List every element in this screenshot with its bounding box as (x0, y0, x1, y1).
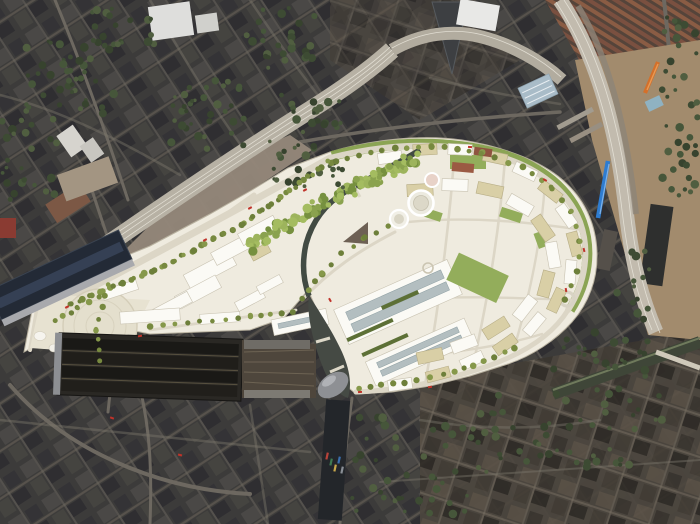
tree (160, 322, 166, 328)
tree (288, 217, 298, 227)
tree (212, 77, 219, 84)
tree (172, 118, 177, 123)
tree (325, 159, 330, 164)
tree (268, 312, 273, 317)
tree (3, 179, 11, 187)
tree (70, 90, 74, 94)
tree (577, 239, 582, 244)
tree (536, 442, 541, 447)
tree (567, 449, 573, 455)
tree (287, 187, 293, 193)
tree (582, 353, 586, 357)
tree (272, 225, 278, 231)
tree (315, 166, 321, 172)
tree (396, 496, 401, 501)
tree (23, 44, 31, 52)
tree (468, 434, 475, 441)
tree (637, 349, 642, 354)
tree (349, 183, 355, 189)
tree (510, 425, 515, 430)
tree (662, 29, 668, 35)
tree (241, 116, 247, 122)
tree (94, 327, 99, 332)
tree (687, 134, 694, 141)
tree (320, 121, 328, 129)
tree (374, 230, 379, 235)
tree (190, 99, 194, 103)
tree (89, 293, 95, 299)
tree (409, 159, 417, 167)
tree (610, 338, 618, 346)
tree (540, 423, 548, 431)
tree (566, 423, 574, 431)
tree (635, 297, 640, 302)
tree (376, 167, 381, 172)
tree (206, 118, 212, 124)
tree (76, 306, 80, 310)
tree (64, 68, 70, 74)
tree (202, 134, 207, 139)
tree (263, 237, 271, 245)
tree (591, 351, 598, 358)
tree (50, 116, 57, 123)
tree (470, 363, 477, 370)
tree (477, 410, 485, 418)
tree (354, 509, 358, 513)
tree (187, 85, 192, 90)
tree (96, 337, 101, 342)
tree (102, 43, 108, 49)
tree (315, 118, 321, 124)
tree (612, 364, 619, 371)
tree (229, 118, 237, 126)
tree (141, 270, 148, 277)
tree (311, 210, 319, 218)
tree (260, 207, 265, 212)
tree (221, 83, 226, 88)
tree (459, 425, 466, 432)
tree (520, 164, 527, 171)
tree (276, 151, 282, 157)
tree (79, 296, 86, 303)
tree (191, 247, 198, 254)
tree (545, 450, 553, 458)
tree (311, 13, 317, 19)
tree (281, 57, 288, 64)
tree (113, 22, 119, 28)
tree (32, 183, 37, 188)
tree (426, 510, 433, 517)
tree (664, 148, 672, 156)
tree (305, 173, 310, 178)
tree (253, 235, 259, 241)
tree (516, 448, 523, 455)
tree (449, 510, 458, 519)
tree (462, 365, 467, 370)
tree (303, 204, 313, 214)
tree (491, 426, 499, 434)
tree (312, 111, 316, 115)
tree (80, 43, 89, 52)
plaza-pavilion (34, 332, 46, 341)
tree (672, 75, 676, 79)
tree (467, 149, 472, 154)
tree (59, 60, 67, 68)
tree (659, 86, 666, 93)
tree (640, 275, 645, 280)
tree (248, 247, 257, 256)
tree (379, 148, 384, 153)
tree (182, 104, 187, 109)
tree (356, 386, 362, 392)
tree (86, 299, 93, 306)
tree (5, 166, 9, 170)
tree (351, 244, 356, 249)
tree (75, 57, 83, 65)
tree (292, 115, 301, 124)
tree (210, 235, 216, 241)
tree (198, 319, 202, 323)
tree (36, 71, 41, 76)
tree (275, 43, 281, 49)
tree (374, 458, 378, 462)
tree (99, 109, 107, 117)
tree (433, 485, 441, 493)
tree (630, 300, 636, 306)
tree (378, 413, 387, 422)
tree (550, 366, 557, 373)
tree (636, 407, 641, 412)
tree (447, 500, 453, 506)
tree (22, 129, 30, 137)
tree (386, 223, 391, 228)
tree (693, 143, 698, 148)
tree (28, 80, 36, 88)
tree (207, 111, 214, 118)
tree (250, 214, 255, 219)
tree (204, 85, 209, 90)
tree (632, 284, 636, 288)
tree (167, 138, 175, 146)
tree (625, 461, 633, 469)
tree (331, 120, 338, 127)
tree (691, 29, 699, 37)
tree (564, 336, 570, 342)
tree (577, 254, 582, 259)
tree (82, 70, 87, 75)
tree (290, 40, 295, 45)
tree (70, 82, 75, 87)
tree (452, 468, 458, 474)
tree (429, 497, 435, 503)
tree (293, 185, 298, 190)
tree (109, 90, 118, 99)
tree (555, 449, 559, 453)
tree (583, 347, 587, 351)
tree (591, 453, 596, 458)
tree (5, 158, 10, 163)
tree (148, 32, 154, 38)
tree (569, 283, 574, 288)
tree (359, 465, 366, 472)
tree (181, 91, 188, 98)
tree (204, 146, 210, 152)
tree (274, 177, 279, 182)
tree (324, 98, 332, 106)
tree (670, 166, 677, 173)
tree (185, 320, 190, 325)
tree (69, 310, 74, 315)
tree (19, 118, 24, 123)
tree (511, 345, 518, 352)
tree (319, 270, 325, 276)
tree (686, 175, 692, 181)
tree (574, 268, 580, 274)
tree (645, 306, 651, 312)
tree (677, 193, 681, 197)
tree (287, 44, 295, 52)
tree (171, 103, 176, 108)
tree (240, 142, 246, 148)
tree (673, 34, 681, 42)
tree (74, 77, 79, 82)
tree (225, 79, 231, 85)
tree (172, 259, 177, 264)
tree (644, 338, 650, 344)
tree (401, 380, 407, 386)
tree (562, 397, 570, 405)
tree (492, 433, 500, 441)
tree (330, 167, 336, 173)
scene-svg (0, 0, 700, 524)
tree (368, 150, 373, 155)
tree (221, 231, 227, 237)
tree (401, 159, 407, 165)
tree (329, 262, 334, 267)
tree (248, 314, 253, 319)
tree (261, 8, 266, 13)
tree (497, 452, 502, 457)
tree (576, 345, 581, 350)
tree (454, 146, 461, 153)
tree (413, 377, 419, 383)
tree (448, 430, 456, 438)
tree (78, 75, 84, 81)
tree (106, 12, 113, 19)
tree (97, 348, 102, 353)
tree (381, 168, 386, 173)
tree (345, 156, 350, 161)
tree (56, 86, 64, 94)
tree (93, 79, 98, 84)
tree (491, 354, 497, 360)
tree (337, 193, 344, 200)
tree (151, 267, 157, 273)
tree (131, 276, 136, 281)
tree (106, 282, 111, 287)
tree (302, 151, 311, 160)
tree (677, 151, 684, 158)
red-bus (468, 146, 472, 148)
tree (641, 366, 650, 375)
tree (492, 154, 498, 160)
tree (378, 490, 383, 495)
tree (119, 280, 126, 287)
tree (465, 494, 469, 498)
tree (21, 177, 27, 183)
tree (39, 61, 47, 69)
tree (173, 322, 178, 327)
tree (647, 267, 651, 271)
tree (668, 186, 675, 193)
tree (241, 222, 246, 227)
tree (102, 293, 108, 299)
tree (266, 55, 270, 59)
tree (200, 94, 207, 101)
tree (296, 143, 300, 147)
tree (667, 58, 675, 66)
tree (478, 151, 483, 156)
tree (589, 422, 595, 428)
tree (295, 166, 302, 173)
tree (631, 413, 635, 417)
tree (333, 158, 339, 164)
tree (93, 6, 101, 14)
tree (202, 241, 208, 247)
tree (28, 145, 35, 152)
tree (281, 149, 286, 154)
tree (353, 176, 360, 183)
tree (26, 73, 30, 77)
tree (69, 301, 74, 306)
tree (115, 41, 121, 47)
aerial-masterplan-image (0, 0, 700, 524)
station-throat-tracks (242, 340, 316, 398)
tree (10, 190, 18, 198)
tree (299, 296, 305, 302)
tree (602, 409, 609, 416)
tree (173, 95, 177, 99)
tree (60, 313, 66, 319)
tree (181, 253, 185, 257)
tree (53, 139, 60, 146)
tree (260, 38, 265, 43)
tree (127, 17, 133, 23)
tree (607, 447, 612, 452)
tree (310, 173, 315, 178)
tree (593, 358, 599, 364)
tree (49, 41, 53, 45)
tree (605, 390, 613, 398)
tree (441, 422, 450, 431)
tree (421, 453, 428, 460)
tree (416, 145, 421, 150)
tree (443, 443, 449, 449)
tree (47, 71, 55, 79)
tree (337, 166, 341, 170)
tree (470, 426, 475, 431)
tree (97, 358, 102, 363)
tree (594, 387, 599, 392)
tree (29, 122, 35, 128)
tree (683, 162, 690, 169)
tree (675, 139, 682, 146)
tree (642, 249, 648, 255)
tree (620, 358, 624, 362)
tree (484, 470, 488, 474)
tree (47, 136, 53, 142)
tree (632, 252, 641, 261)
tree (499, 409, 506, 416)
tree (338, 121, 342, 125)
tree (100, 304, 106, 310)
tree (40, 92, 46, 98)
tree (559, 197, 565, 203)
tree (50, 190, 58, 198)
tree (386, 163, 393, 170)
tree (20, 166, 24, 170)
tree (57, 102, 62, 107)
tree (675, 24, 682, 31)
tree (393, 444, 400, 451)
tree (577, 351, 581, 355)
tree (680, 73, 688, 81)
tree (258, 313, 264, 319)
tree (266, 66, 270, 70)
tree (229, 131, 234, 136)
tree (613, 289, 621, 297)
tree (291, 110, 295, 114)
tree (229, 103, 234, 108)
tree (261, 29, 266, 34)
tree (543, 432, 550, 439)
tree (277, 9, 286, 18)
tree (523, 458, 530, 465)
tree (505, 160, 511, 166)
tree (549, 186, 554, 191)
tree (338, 250, 344, 256)
tree (53, 318, 58, 323)
tree (658, 416, 666, 424)
tree (381, 495, 387, 501)
tree (673, 88, 677, 92)
tree (224, 318, 229, 323)
tree (430, 427, 436, 433)
tree (429, 144, 435, 150)
tree (672, 18, 678, 24)
tree (272, 167, 276, 171)
tree (654, 418, 658, 422)
tree (427, 374, 433, 380)
tree (290, 309, 296, 315)
tree (223, 109, 228, 114)
tree (78, 106, 83, 111)
tree (562, 346, 566, 350)
tree (403, 510, 407, 514)
tree (694, 51, 698, 55)
tree (618, 463, 622, 467)
tree (162, 263, 168, 269)
tree (404, 472, 410, 478)
tree (24, 102, 28, 106)
tree (665, 124, 669, 128)
tree (326, 202, 332, 208)
tree (606, 366, 610, 370)
tree (365, 437, 369, 441)
tree (377, 175, 382, 180)
tree (633, 309, 642, 318)
tree (404, 145, 410, 151)
